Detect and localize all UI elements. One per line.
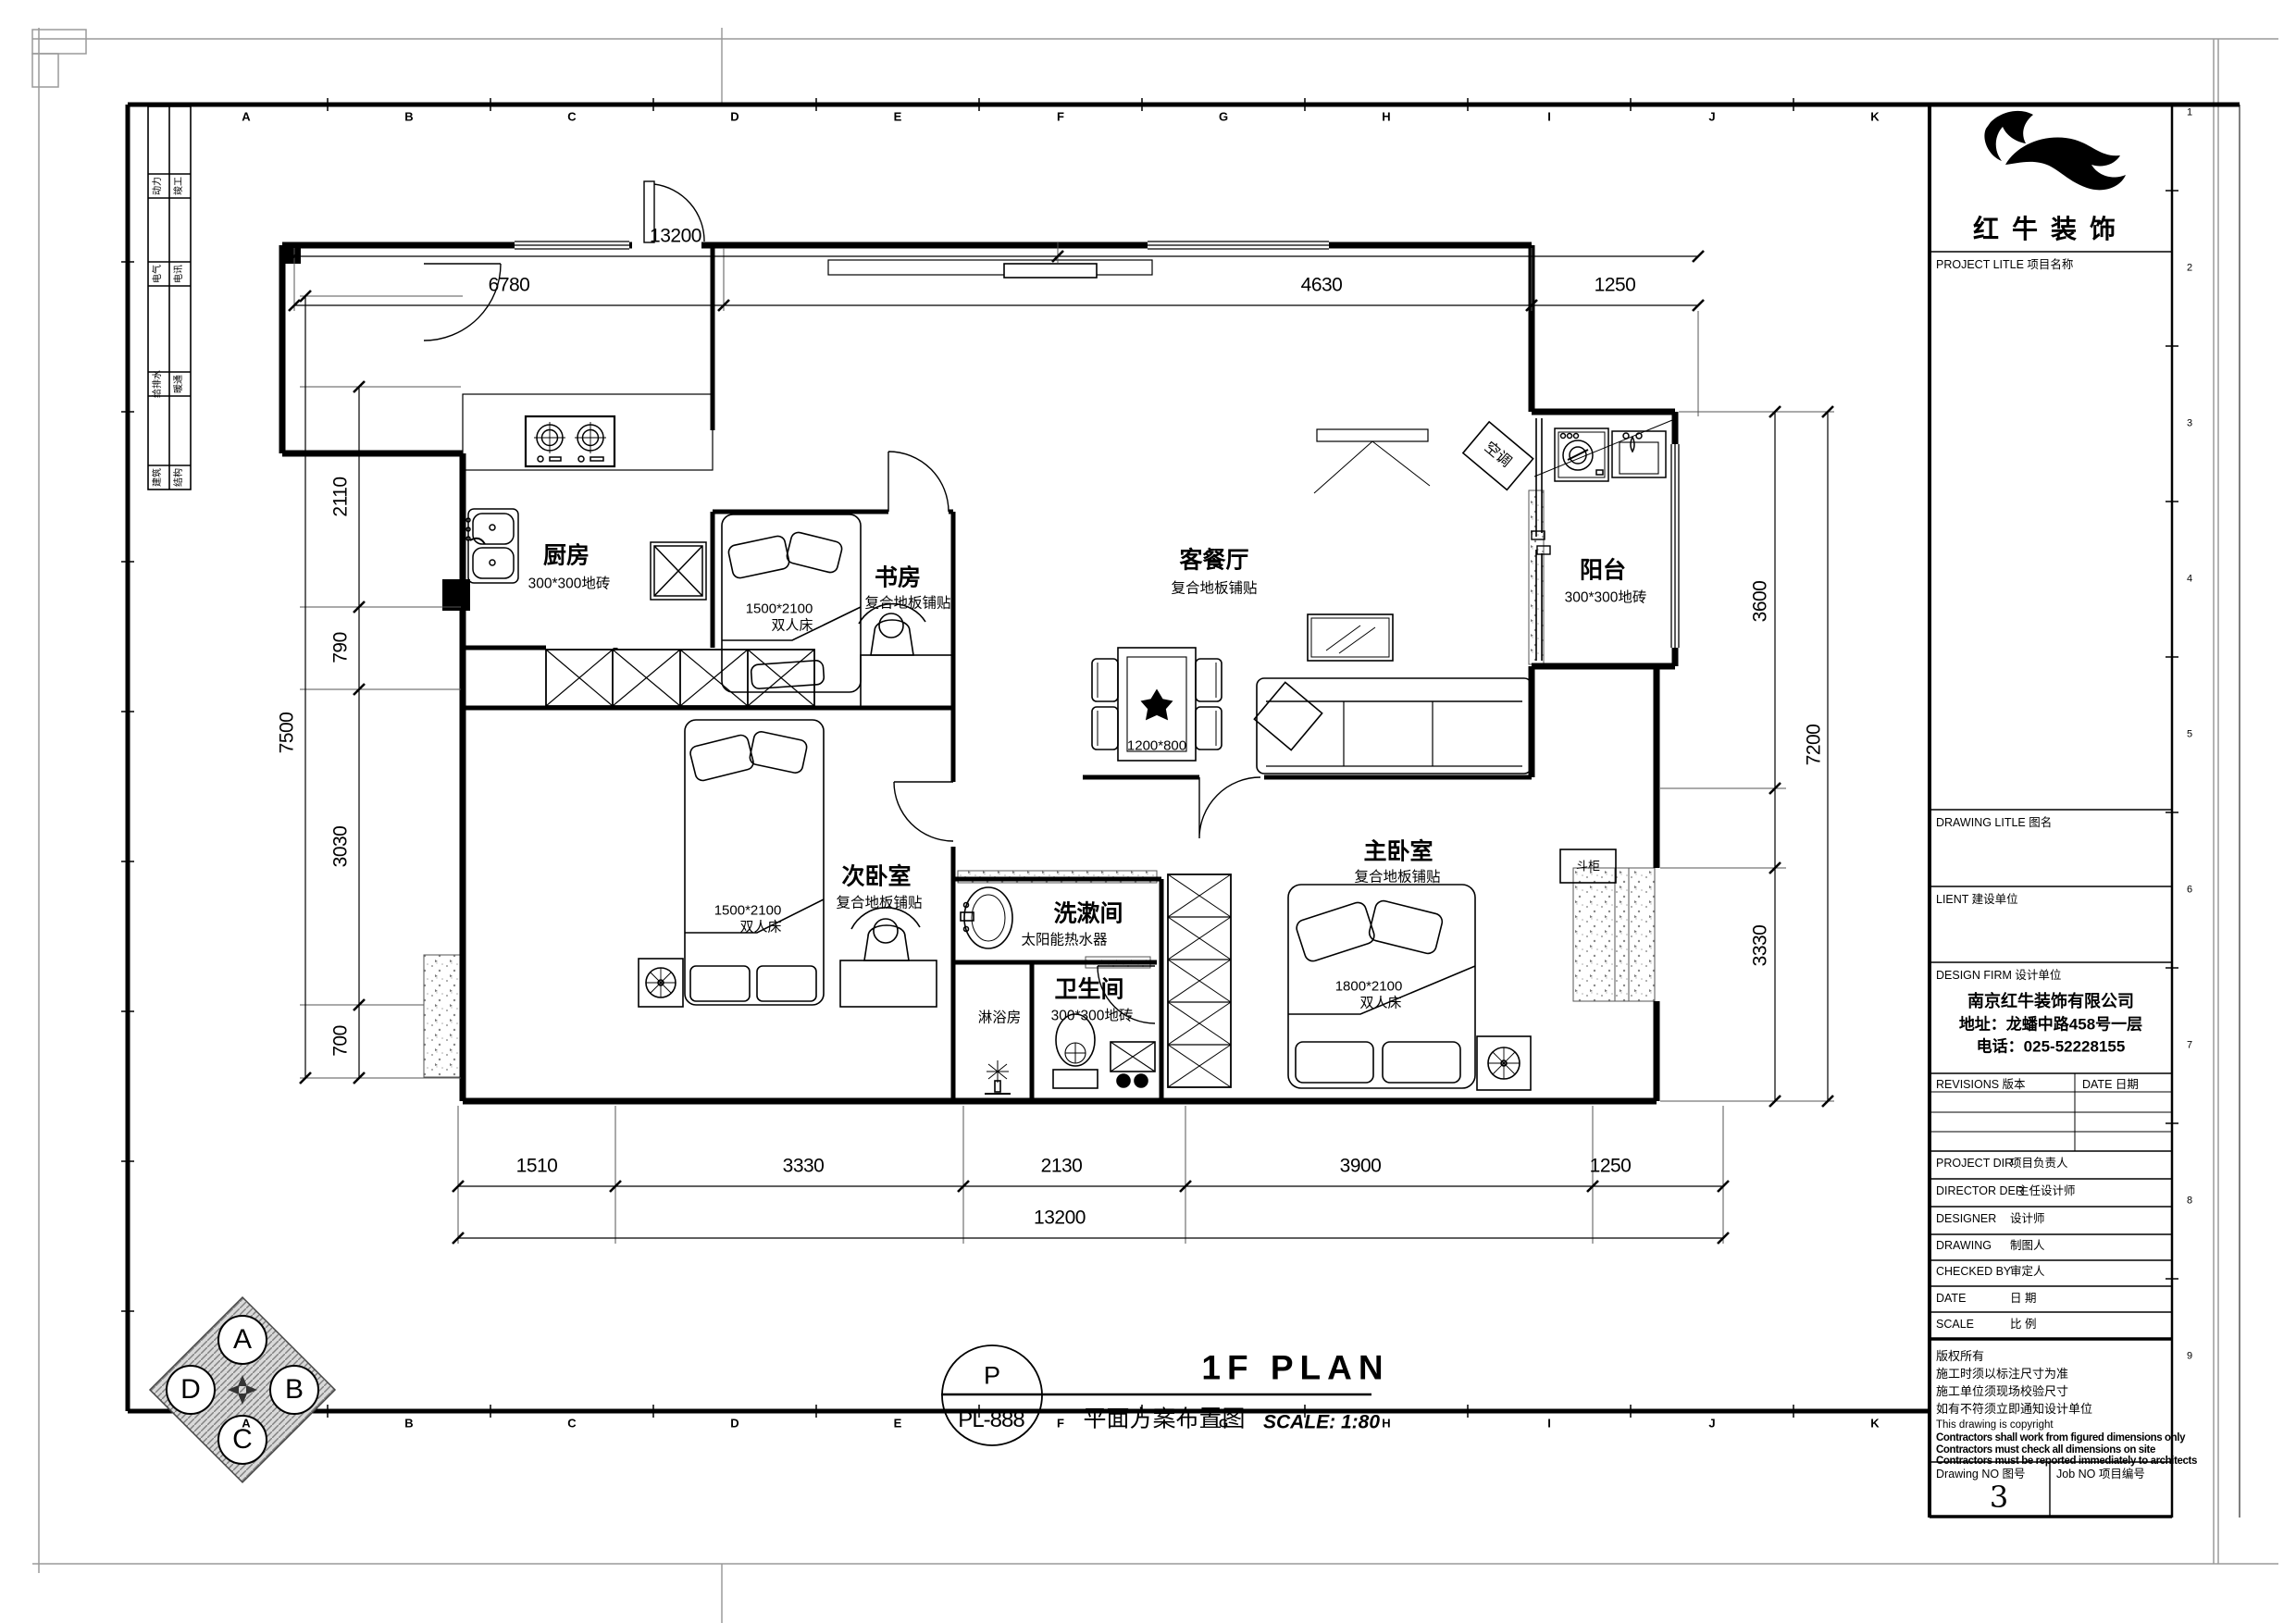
titleblock-project-label: PROJECT LITLE 项目名称 — [1936, 259, 2073, 271]
titleblock-company: 南京红牛装饰有限公司 — [1967, 993, 2134, 1010]
study-bed-size: 1500*2100 — [746, 602, 813, 616]
dim-left-seg: 3030 — [331, 826, 351, 868]
dimension-ticks — [289, 251, 1833, 1244]
grid-letter-top: D — [730, 111, 738, 123]
dim-bottom-seg: 3900 — [1340, 1157, 1382, 1176]
titleblock-address: 地址：龙蟠中路458号一层 — [1959, 1017, 2142, 1033]
grid-letter-top: F — [1057, 111, 1064, 123]
doors — [424, 181, 1550, 1023]
grid-letter-top: B — [404, 111, 413, 123]
dim-bottom-seg: 3330 — [783, 1157, 825, 1176]
grid-letter-bottom: D — [730, 1418, 738, 1430]
compass-south-label: C — [232, 1426, 253, 1454]
dining-table-size: 1200*800 — [1127, 739, 1186, 753]
discipline-label: 电讯 — [175, 265, 184, 283]
discipline-label: 竣工 — [175, 177, 184, 195]
grid-number: 5 — [2187, 730, 2192, 740]
grid-letter-top: C — [567, 111, 576, 123]
grid-letter-bottom: B — [404, 1418, 413, 1430]
grid-letter-bottom: E — [894, 1418, 902, 1430]
windows — [515, 239, 1682, 648]
dim-top-overall: 13200 — [650, 227, 701, 246]
grid-letter-top: I — [1547, 111, 1551, 123]
study-bed-type: 双人床 — [771, 619, 813, 633]
dim-bottom-overall: 13200 — [1034, 1208, 1086, 1228]
titleblock-row-en: DESIGNER — [1936, 1213, 1996, 1225]
grid-number: 1 — [2187, 108, 2192, 118]
master-bed-size: 1800*2100 — [1335, 980, 1403, 994]
grid-number: 2 — [2187, 264, 2192, 274]
titleblock-row-cn: 制图人 — [2010, 1240, 2045, 1252]
plan-title-cn: 平面方案布置图 — [1083, 1408, 1245, 1431]
grid-letter-top: H — [1382, 111, 1390, 123]
titleblock-date-col-label: DATE 日期 — [2082, 1079, 2139, 1091]
chest-label: 斗柜 — [1576, 861, 1600, 873]
living-furniture — [828, 260, 1533, 774]
second-bed-type: 双人床 — [739, 921, 781, 935]
second-bed-size: 1500*2100 — [714, 904, 782, 918]
discipline-label: 给排水 — [154, 370, 163, 398]
titleblock-row-cn: 比 例 — [2010, 1319, 2036, 1331]
dim-left-seg: 2110 — [331, 477, 351, 516]
dimension-lines — [294, 256, 1828, 1238]
discipline-label: 电气 — [154, 265, 163, 283]
master-bed-type: 双人床 — [1359, 997, 1401, 1010]
plan-title-en: 1F PLAN — [1201, 1351, 1389, 1385]
dim-bottom-seg: 1510 — [516, 1157, 558, 1176]
titleblock-note: 版权所有 — [1936, 1349, 1984, 1365]
titleblock-row-en: DATE — [1936, 1293, 1966, 1305]
grid-number: 9 — [2187, 1352, 2192, 1362]
kitchen-fixtures — [463, 394, 713, 600]
plan-code: PL-888 — [958, 1409, 1024, 1431]
drawing-no-label: Drawing NO 图号 — [1936, 1468, 2026, 1481]
room-note-washroom: 太阳能热水器 — [1021, 933, 1107, 948]
titleblock-row-cn: 主任设计师 — [2017, 1185, 2076, 1197]
compass-north-label: A — [233, 1326, 252, 1354]
titleblock-row-en: CHECKED BY — [1936, 1266, 2011, 1278]
grid-letter-bottom: K — [1870, 1418, 1879, 1430]
dim-top-seg: 4630 — [1301, 276, 1343, 295]
titleblock-note: 施工单位须现场校验尺寸 — [1936, 1384, 2068, 1400]
dim-left-seg: 790 — [331, 632, 351, 663]
room-label-study: 书房 — [875, 567, 921, 590]
room-label-kitchen: 厨房 — [543, 545, 590, 568]
grid-number: 7 — [2187, 1041, 2192, 1051]
plan-scale: SCALE: 1:80 — [1263, 1413, 1380, 1432]
titleblock-row-en: DIRECTOR DER — [1936, 1185, 2024, 1197]
sheet-canvas: A B C D E F G H I J K A B C D E F G H I … — [0, 0, 2296, 1623]
discipline-label: 动力 — [154, 177, 163, 195]
titleblock-drawing-label: DRAWING LITLE 图名 — [1936, 817, 2052, 829]
grid-letter-top: J — [1708, 111, 1715, 123]
room-finish-second-bedroom: 复合地板铺贴 — [836, 896, 922, 911]
job-no-label: Job NO 项目编号 — [2056, 1468, 2145, 1481]
discipline-label: 结构 — [175, 468, 184, 487]
dim-top-seg: 6780 — [489, 276, 530, 295]
dim-right-seg: 3600 — [1751, 581, 1770, 623]
titleblock-row-en: PROJECT DIR — [1936, 1158, 2013, 1170]
titleblock-row-cn: 设计师 — [2010, 1213, 2045, 1225]
room-label-washroom: 洗漱间 — [1053, 903, 1123, 926]
titleblock-row-cn: 日 期 — [2010, 1293, 2036, 1305]
dim-right-seg: 3330 — [1751, 925, 1770, 967]
room-finish-bathroom: 300*300地砖 — [1051, 1009, 1134, 1023]
room-finish-balcony: 300*300地砖 — [1565, 590, 1647, 605]
dim-left-seg: 700 — [331, 1025, 351, 1057]
grid-number: 4 — [2187, 575, 2192, 585]
discipline-label: 建筑 — [154, 468, 163, 487]
grid-number: 6 — [2187, 886, 2192, 896]
dim-top-seg: 1250 — [1595, 276, 1636, 295]
room-finish-master-bedroom: 复合地板铺贴 — [1354, 870, 1440, 885]
balcony-fixtures — [1534, 418, 1677, 481]
room-label-balcony: 阳台 — [1580, 560, 1626, 583]
exterior-walls — [282, 245, 1675, 1101]
discipline-table — [148, 106, 191, 489]
room-label-living: 客餐厅 — [1179, 550, 1248, 573]
grid-letter-bottom: J — [1708, 1418, 1715, 1430]
discipline-label: 暖通 — [175, 375, 184, 393]
grid-letter-top: E — [894, 111, 902, 123]
dim-extension-lines — [294, 242, 1834, 1244]
compass-west-label: D — [180, 1376, 201, 1404]
room-label-second-bedroom: 次卧室 — [841, 866, 911, 889]
dim-bottom-seg: 1250 — [1590, 1157, 1632, 1176]
grid-letter-top: G — [1219, 111, 1228, 123]
grid-number: 8 — [2187, 1196, 2192, 1207]
titleblock-row-cn: 项目负责人 — [2010, 1158, 2068, 1170]
room-finish-living: 复合地板铺贴 — [1171, 581, 1257, 596]
titleblock-note: This drawing is copyright — [1936, 1419, 2054, 1432]
brand-name: 红牛装饰 — [1973, 217, 2128, 242]
room-finish-kitchen: 300*300地砖 — [528, 576, 611, 591]
titleblock-revisions-label: REVISIONS 版本 — [1936, 1079, 2026, 1091]
closet-row — [546, 650, 814, 706]
grid-letter-top: K — [1870, 111, 1879, 123]
sheet-frame — [128, 105, 2240, 1518]
titleblock-row-cn: 审定人 — [2010, 1266, 2045, 1278]
titleblock-row-en: DRAWING — [1936, 1240, 1992, 1252]
grid-letter-bottom: I — [1547, 1418, 1551, 1430]
grid-letter-top: A — [242, 111, 250, 123]
titleblock-note: 施工时须以标注尺寸为准 — [1936, 1367, 2068, 1382]
titleblock-client-label: LIENT 建设单位 — [1936, 894, 2018, 906]
grid-letter-bottom: F — [1057, 1418, 1064, 1430]
titleblock-note: Contractors must be reported immediately… — [1936, 1455, 2197, 1468]
room-label-shower: 淋浴房 — [978, 1010, 1022, 1025]
grid-letter-bottom: H — [1382, 1418, 1390, 1430]
master-bedroom-furniture — [1168, 849, 1616, 1090]
plan-code-letter: P — [984, 1364, 1000, 1389]
grid-letter-bottom: C — [567, 1418, 576, 1430]
compass-east-label: B — [285, 1376, 304, 1404]
structural-piers — [284, 247, 470, 611]
titleblock-firm-label: DESIGN FIRM 设计单位 — [1936, 970, 2061, 982]
dim-bottom-seg: 2130 — [1041, 1157, 1083, 1176]
dim-right-overall: 7200 — [1805, 725, 1824, 766]
titleblock-phone: 电话：025-52228155 — [1977, 1039, 2126, 1055]
titleblock-row-en: SCALE — [1936, 1319, 1974, 1331]
drawing-no-value: 3 — [1990, 1482, 2008, 1512]
brand-logo-icon — [1984, 111, 2126, 190]
dim-left-overall: 7500 — [278, 712, 297, 754]
room-label-master-bedroom: 主卧室 — [1363, 841, 1433, 864]
titleblock-note: 如有不符须立即通知设计单位 — [1936, 1402, 2092, 1418]
grid-number: 3 — [2187, 419, 2192, 429]
room-label-bathroom: 卫生间 — [1054, 979, 1123, 1002]
room-finish-study: 复合地板铺贴 — [864, 596, 950, 611]
